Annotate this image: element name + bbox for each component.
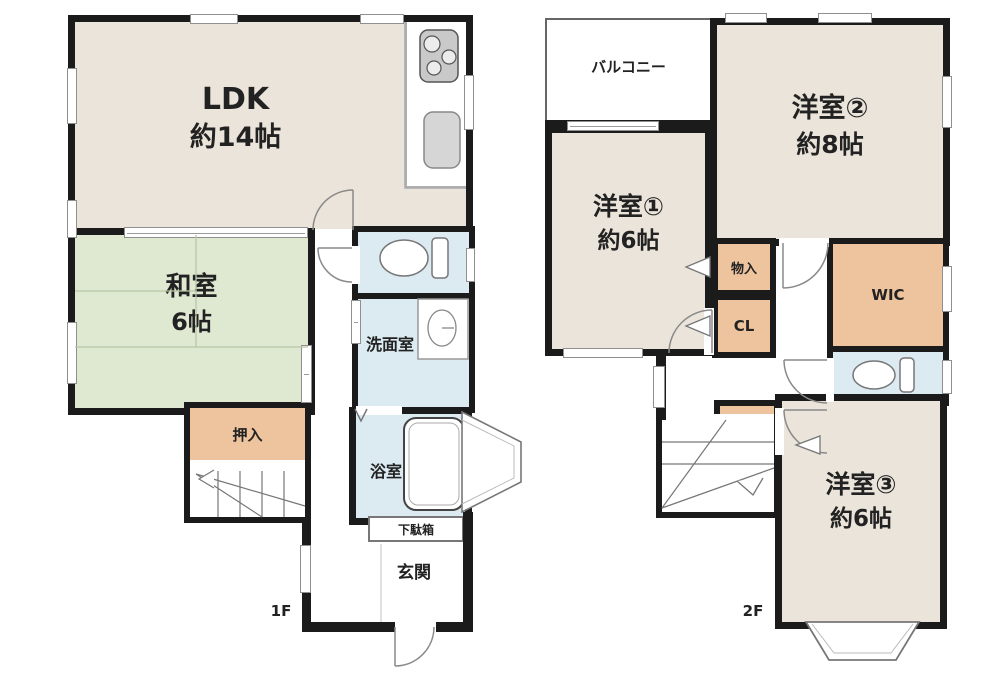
sliding-door-washitsu-right xyxy=(301,345,312,403)
window-ldk-left-a xyxy=(67,68,77,124)
door-arc-toilet-1f xyxy=(318,248,352,282)
room-yoshitsu1: 洋室① 約6帖 xyxy=(545,126,712,356)
room-yoshitsu3: 洋室③ 約6帖 xyxy=(775,394,947,629)
area-genkan-label: 玄関 xyxy=(365,562,463,584)
room-washitsu-size: 6帖 xyxy=(75,307,308,338)
room-balcony-label: バルコニー xyxy=(547,58,710,78)
window-ldk-left-b xyxy=(67,200,77,238)
window-ldk-top-b xyxy=(360,14,404,24)
wall-bottom-left-1f xyxy=(302,622,395,632)
sliding-door-balcony xyxy=(567,121,659,131)
opening-yoshitsu2-door xyxy=(779,238,829,247)
closet-oshiire-label: 押入 xyxy=(232,424,262,445)
opening-ldk-hall xyxy=(315,229,352,238)
closet-wic: WIC xyxy=(827,238,949,352)
window-toilet-2f-right xyxy=(942,360,952,394)
window-stairs-left-2f xyxy=(653,366,665,408)
window-toilet-1f-right xyxy=(466,248,475,282)
room-balcony: バルコニー xyxy=(545,18,712,124)
area-genkan: 玄関 xyxy=(365,542,463,624)
room-yoshitsu2-size: 約8帖 xyxy=(717,129,943,162)
window-yoshitsu1-bottom xyxy=(563,348,643,358)
room-washitsu: 和室 6帖 xyxy=(68,228,315,415)
opening-yoshitsu3-door xyxy=(775,408,784,455)
room-yoshitsu3-name: 洋室③ xyxy=(782,469,940,502)
room-yoshitsu2-name: 洋室② xyxy=(717,91,943,126)
entrance-door-arc xyxy=(395,627,434,666)
window-yoshitsu2-top-b xyxy=(818,13,872,23)
room-yokushitsu: 浴室 xyxy=(349,407,472,525)
room-toilet-1f xyxy=(352,226,475,299)
kitchen-counter xyxy=(405,22,466,188)
window-hall-left-1f xyxy=(300,545,311,593)
room-yoshitsu1-size: 約6帖 xyxy=(552,227,705,257)
wall-genkan-right xyxy=(463,512,473,632)
window-washitsu-left xyxy=(67,322,77,384)
window-wic-right xyxy=(942,266,952,312)
room-yoshitsu3-size: 約6帖 xyxy=(782,505,940,535)
sliding-door-washitsu-top xyxy=(124,227,308,238)
cabinet-getabako: 下駄箱 xyxy=(368,516,464,542)
room-washitsu-name: 和室 xyxy=(75,271,308,305)
opening-yoshitsu1-door xyxy=(704,308,714,355)
window-yoshitsu2-top-a xyxy=(725,13,767,23)
cabinet-getabako-label: 下駄箱 xyxy=(398,521,434,538)
opening-toilet-2f-door xyxy=(826,358,834,402)
room-senmenshitsu: 洗面室 xyxy=(352,293,475,413)
door-senmenshitsu-left xyxy=(351,300,361,344)
room-ldk-name: LDK xyxy=(75,80,396,119)
window-kitchen-right xyxy=(464,75,474,130)
room-yokushitsu-label: 浴室 xyxy=(370,458,402,482)
stairs-1f xyxy=(184,460,311,523)
room-senmenshitsu-label: 洗面室 xyxy=(366,331,414,355)
closet-wic-label: WIC xyxy=(871,286,904,304)
opening-toilet-1f xyxy=(351,246,360,284)
closet-cl-label: CL xyxy=(734,317,755,335)
room-ldk-size: 約14帖 xyxy=(75,120,396,155)
closet-monoire-upper: 物入 xyxy=(712,238,776,296)
opening-bath-door xyxy=(356,406,402,415)
room-yoshitsu1-name: 洋室① xyxy=(552,191,705,224)
floor-plan-canvas: LDK 約14帖 和室 6帖 押入 洗面室 浴室 下駄箱 玄関 1F xyxy=(0,0,1000,685)
window-yoshitsu2-right xyxy=(942,76,952,128)
closet-monoire-upper-label: 物入 xyxy=(731,258,757,277)
closet-cl: CL xyxy=(712,294,776,358)
stairs-2f xyxy=(656,414,780,518)
closet-oshiire: 押入 xyxy=(184,402,311,466)
window-ldk-top-a xyxy=(190,14,238,24)
floor-label-1f: 1F xyxy=(258,602,304,620)
floor-label-2f: 2F xyxy=(730,602,776,620)
door-arc-yoshitsu2 xyxy=(783,243,828,288)
room-yoshitsu2: 洋室② 約8帖 xyxy=(710,18,950,246)
